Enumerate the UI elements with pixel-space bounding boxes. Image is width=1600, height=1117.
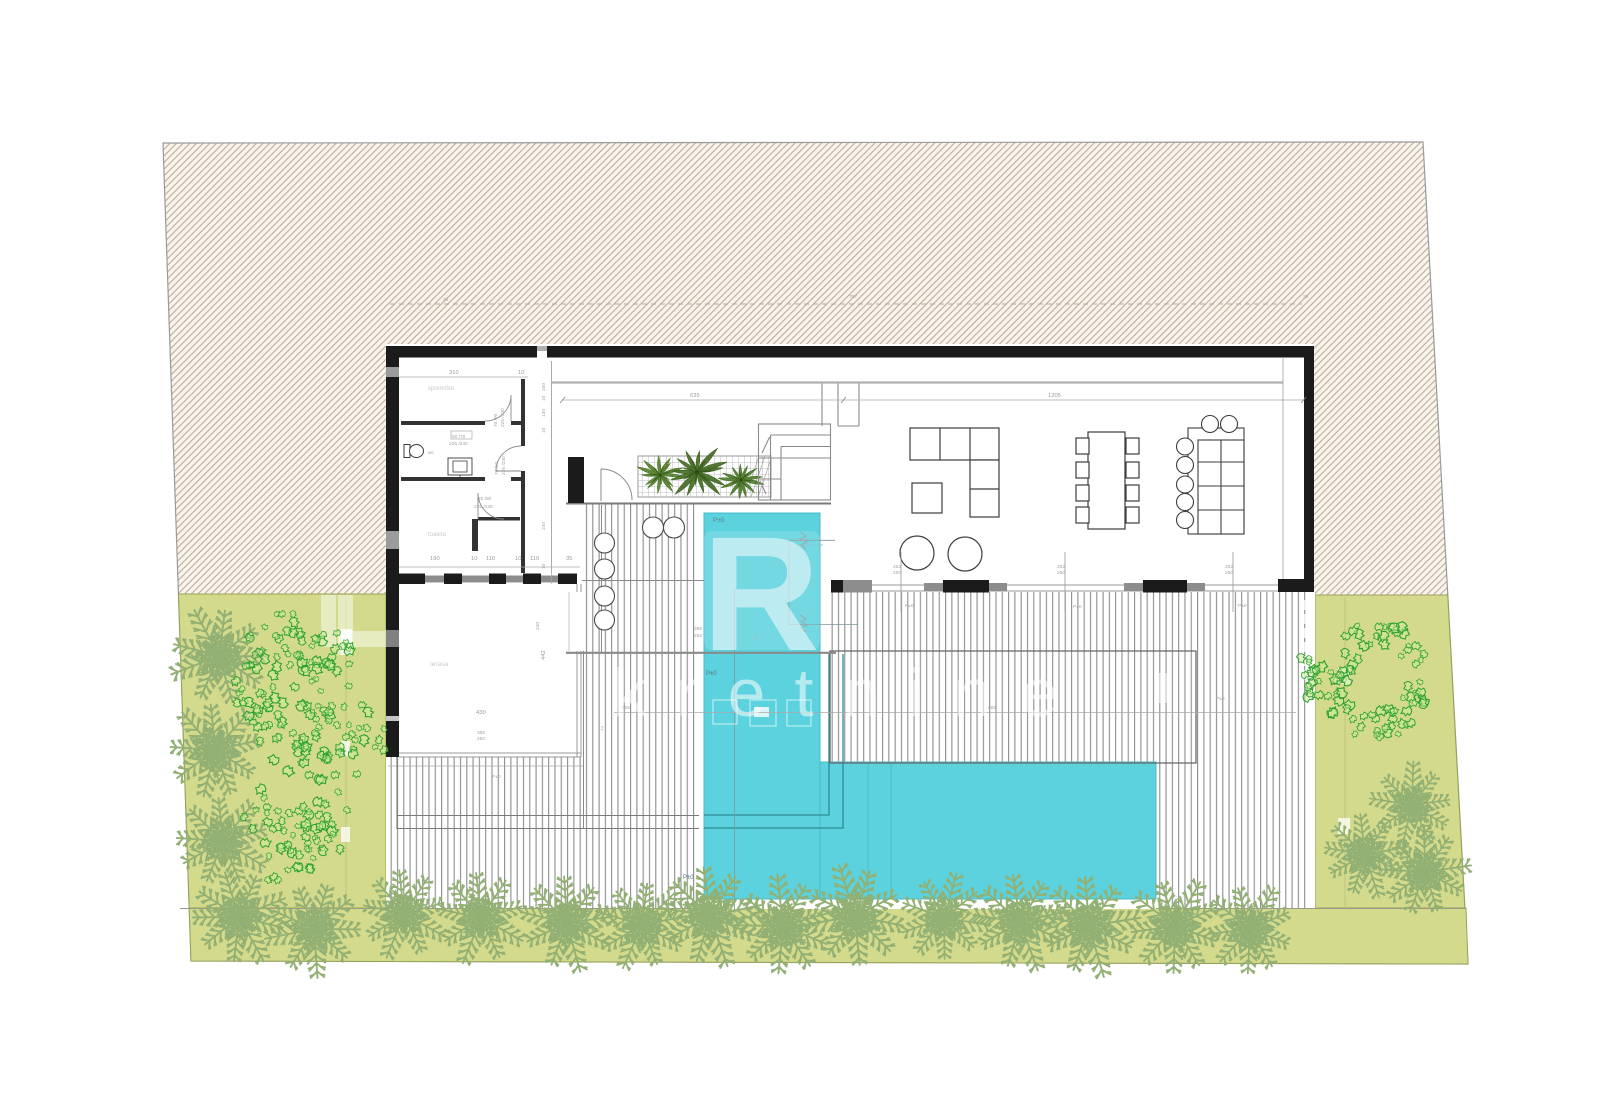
svg-text:wc: wc xyxy=(428,451,434,456)
svg-text:1205: 1205 xyxy=(1048,393,1061,399)
svg-text:P±0: P±0 xyxy=(905,603,914,609)
svg-text:240: 240 xyxy=(535,622,541,630)
svg-text:252: 252 xyxy=(1225,564,1233,570)
svg-text:35: 35 xyxy=(443,297,449,303)
svg-text:10: 10 xyxy=(541,563,547,569)
svg-text:10: 10 xyxy=(471,556,477,562)
svg-text:110: 110 xyxy=(530,556,539,562)
svg-text:P±0: P±0 xyxy=(1073,604,1082,610)
svg-text:190: 190 xyxy=(430,556,440,562)
svg-text:70 /90: 70 /90 xyxy=(493,413,499,427)
svg-text:225 /230: 225 /230 xyxy=(474,504,493,510)
svg-text:787: 787 xyxy=(849,294,857,300)
svg-text:35: 35 xyxy=(566,556,572,562)
svg-text:toaleta: toaleta xyxy=(428,532,447,538)
svg-text:P±0: P±0 xyxy=(1216,696,1225,702)
svg-text:160: 160 xyxy=(541,383,547,391)
svg-text:250: 250 xyxy=(477,736,485,742)
svg-text:252: 252 xyxy=(893,564,901,570)
svg-text:240: 240 xyxy=(541,522,547,530)
svg-text:terasa: terasa xyxy=(430,661,448,668)
svg-text:10: 10 xyxy=(541,427,547,433)
svg-text:P±0: P±0 xyxy=(492,774,501,780)
svg-text:110: 110 xyxy=(486,556,495,562)
svg-text:35: 35 xyxy=(1303,294,1309,300)
svg-text:10: 10 xyxy=(515,556,521,562)
svg-text:225 /230: 225 /230 xyxy=(500,408,506,427)
svg-text:252: 252 xyxy=(1057,564,1065,570)
svg-text:P±0: P±0 xyxy=(683,875,694,881)
svg-text:10: 10 xyxy=(518,370,524,376)
svg-text:635: 635 xyxy=(690,393,700,399)
svg-text:spremište: spremište xyxy=(428,386,455,392)
svg-text:310: 310 xyxy=(449,370,459,376)
svg-text:130: 130 xyxy=(541,409,547,417)
svg-text:70 /80: 70 /80 xyxy=(478,496,492,502)
svg-text:P±0: P±0 xyxy=(1238,603,1247,609)
svg-text:10: 10 xyxy=(541,395,547,401)
svg-text:430: 430 xyxy=(476,710,486,716)
svg-text:385: 385 xyxy=(477,730,485,736)
svg-text:250: 250 xyxy=(893,570,901,576)
svg-text:70 /60: 70 /60 xyxy=(494,461,500,475)
svg-text:250: 250 xyxy=(1225,570,1233,576)
svg-text:250: 250 xyxy=(1057,570,1065,576)
svg-text:225 /230: 225 /230 xyxy=(501,456,507,475)
svg-text:kretnine: kretnine xyxy=(613,655,1087,731)
svg-text:77: 77 xyxy=(600,725,606,731)
svg-text:225 /230: 225 /230 xyxy=(449,441,468,447)
svg-text:442: 442 xyxy=(541,650,547,660)
